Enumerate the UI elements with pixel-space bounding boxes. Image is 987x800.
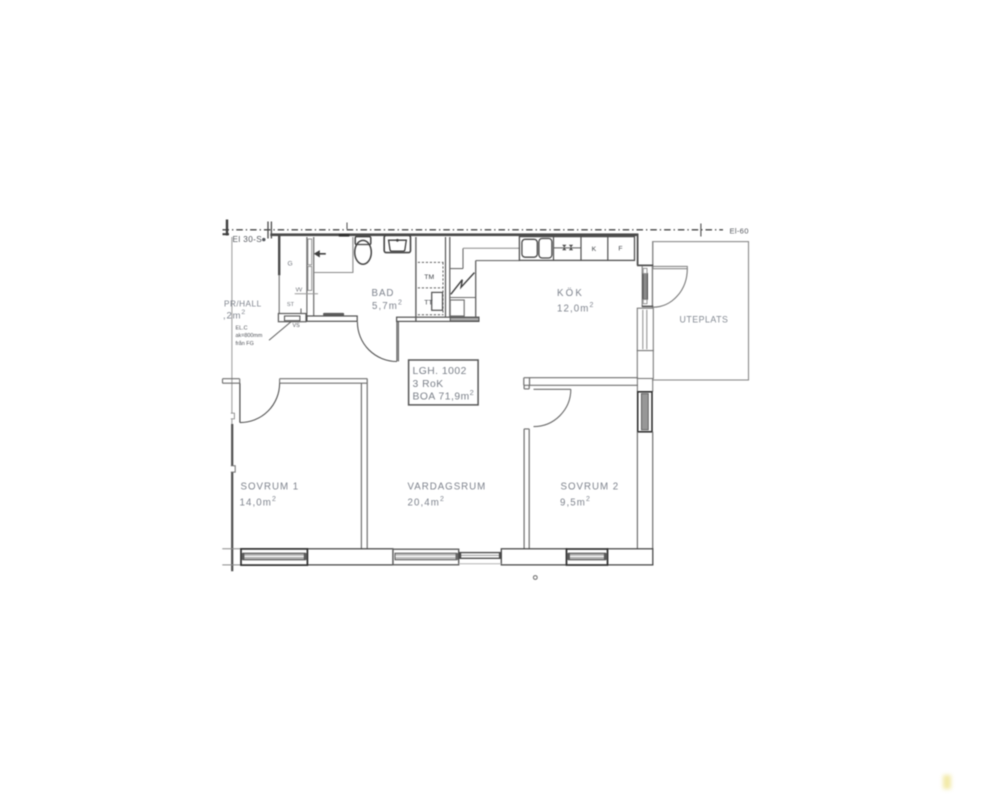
svg-text:EL.C: EL.C [236, 326, 248, 332]
svg-text:El-60: El-60 [730, 227, 749, 236]
svg-text:UTEPLATS: UTEPLATS [680, 315, 729, 325]
svg-text:TM: TM [424, 274, 434, 281]
svg-text:3 RoK: 3 RoK [413, 379, 444, 390]
svg-text:PR/HALL: PR/HALL [224, 299, 262, 308]
svg-text:BAD: BAD [372, 288, 395, 299]
svg-text:från FG: från FG [236, 340, 254, 347]
svg-text:El 30-S: El 30-S [233, 235, 263, 244]
svg-text:SOVRUM 1: SOVRUM 1 [241, 481, 300, 492]
svg-text:K: K [592, 246, 597, 253]
svg-text:TT: TT [424, 299, 432, 306]
svg-text:20,4m2: 20,4m2 [408, 496, 445, 509]
svg-text:12,0m2: 12,0m2 [557, 302, 594, 315]
svg-text:VS: VS [293, 323, 301, 329]
svg-text:VV: VV [296, 288, 303, 294]
svg-text:ak=800mm: ak=800mm [236, 333, 263, 339]
svg-text:LGH. 1002: LGH. 1002 [413, 366, 467, 377]
svg-text:ST: ST [287, 302, 295, 308]
svg-text:F: F [618, 246, 622, 253]
svg-text:SOVRUM 2: SOVRUM 2 [561, 481, 620, 492]
svg-text:KÖK: KÖK [557, 288, 584, 299]
svg-text:14,0m2: 14,0m2 [240, 496, 277, 509]
svg-text:G: G [288, 261, 293, 268]
svg-text:VARDAGSRUM: VARDAGSRUM [408, 481, 487, 492]
